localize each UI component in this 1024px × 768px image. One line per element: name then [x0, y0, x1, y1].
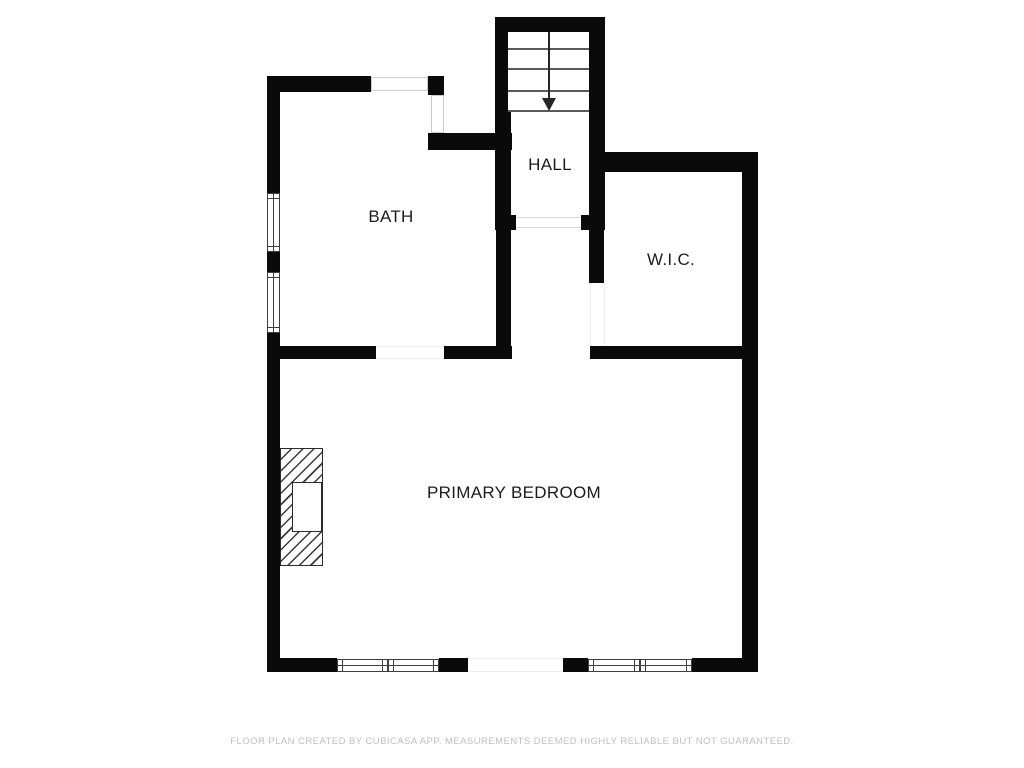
wall-bath-right	[496, 230, 511, 346]
wall-bath-bottom-right	[444, 346, 512, 359]
window-cap	[433, 660, 434, 671]
window-cap	[393, 660, 394, 671]
footer-disclaimer: FLOOR PLAN CREATED BY CUBICASA APP. MEAS…	[0, 736, 1024, 747]
window-bedroom-bottom-1b	[388, 659, 439, 672]
window-pane-line	[273, 194, 274, 251]
wall-bath-left-lower	[267, 333, 280, 346]
window-bath-top	[371, 77, 428, 91]
staircase	[508, 32, 589, 112]
window-bedroom-bottom-2b	[640, 659, 692, 672]
wall-right-exterior	[742, 152, 758, 672]
stairs-down-arrow-icon	[548, 32, 550, 100]
wall-hall-door-jamb-right	[581, 215, 605, 230]
wall-hall-door-jamb-left	[495, 215, 516, 230]
room-label-wic: W.I.C.	[647, 250, 695, 270]
wall-bedroom-bottom-a	[267, 658, 337, 672]
wall-wic-left-upper	[589, 230, 604, 283]
wall-bath-notch	[428, 133, 512, 150]
window-bath-left-1	[267, 193, 280, 252]
window-pane-line	[589, 665, 639, 666]
wall-bedroom-bottom-d	[692, 658, 758, 672]
window-pane-line	[338, 665, 387, 666]
wall-wic-bottom	[590, 346, 742, 359]
room-label-primary-bedroom: PRIMARY BEDROOM	[427, 483, 601, 503]
door-opening-hall	[516, 217, 581, 228]
window-cap	[268, 327, 279, 328]
window-pane-line	[641, 665, 691, 666]
wall-stairs-right	[589, 17, 605, 215]
room-label-hall: HALL	[528, 155, 572, 175]
window-cap	[268, 198, 279, 199]
window-cap	[342, 660, 343, 671]
window-pane-line	[273, 273, 274, 332]
door-opening-bedroom-bottom	[468, 658, 563, 672]
door-opening-wic	[590, 283, 605, 346]
wall-bath-top	[267, 76, 371, 92]
window-cap	[268, 246, 279, 247]
window-cap	[686, 660, 687, 671]
window-bath-left-2	[267, 272, 280, 333]
window-pane-line	[389, 665, 438, 666]
fireplace-firebox	[292, 482, 322, 532]
window-bath-notch	[431, 95, 444, 133]
wall-bedroom-bottom-c	[563, 658, 588, 672]
window-cap	[382, 660, 383, 671]
stairs-down-arrowhead-icon	[542, 98, 556, 111]
wall-bath-bottom-left	[267, 346, 376, 359]
wall-bath-top-corner-post	[428, 76, 444, 95]
wall-bedroom-left	[267, 346, 280, 672]
window-cap	[634, 660, 635, 671]
wall-bedroom-bottom-b	[439, 658, 468, 672]
fireplace	[280, 448, 323, 566]
wall-bath-left-mid	[267, 252, 280, 272]
wall-bath-left-upper	[267, 76, 280, 193]
door-opening-bath	[376, 346, 444, 359]
room-label-bath: BATH	[368, 207, 413, 227]
window-cap	[593, 660, 594, 671]
window-bedroom-bottom-2a	[588, 659, 640, 672]
window-cap	[645, 660, 646, 671]
window-cap	[268, 277, 279, 278]
window-bedroom-bottom-1a	[337, 659, 388, 672]
floor-plan: HALL BATH W.I.C. PRIMARY BEDROOM FLOOR P…	[0, 0, 1024, 768]
wall-wic-top	[589, 152, 758, 172]
